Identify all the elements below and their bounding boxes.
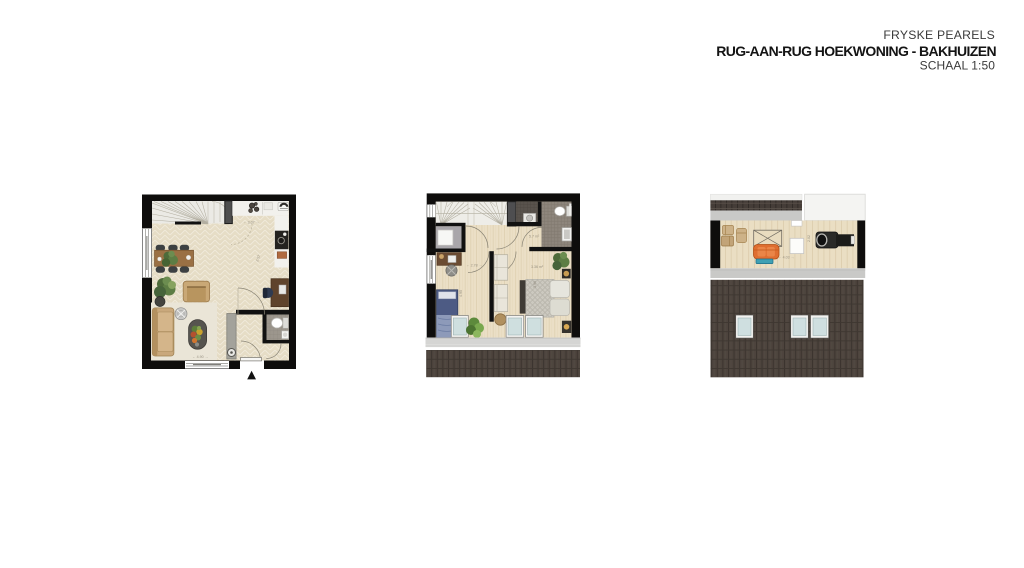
svg-text:RUG-AAN-RUG HOEKWONING - BAKHU: RUG-AAN-RUG HOEKWONING - BAKHUIZEN (716, 43, 996, 59)
svg-text:SCHAAL 1:50: SCHAAL 1:50 (920, 59, 996, 73)
svg-text:← 2.78 →: ← 2.78 → (466, 264, 482, 268)
svg-text:3.36 m²: 3.36 m² (531, 265, 544, 269)
svg-text:← 4.90 →: ← 4.90 → (192, 355, 208, 359)
svg-text:5.7 m²: 5.7 m² (529, 235, 540, 239)
svg-text:.: . (772, 255, 773, 259)
svg-text:← 4.03 →: ← 4.03 → (778, 256, 794, 260)
svg-text:3.96: 3.96 (533, 281, 537, 288)
svg-text:← 3.07 →: ← 3.07 → (243, 220, 259, 224)
svg-text:FRYSKE PEARELS: FRYSKE PEARELS (883, 28, 995, 42)
svg-text:4.95: 4.95 (459, 290, 463, 297)
svg-text:2.02: 2.02 (807, 235, 811, 242)
